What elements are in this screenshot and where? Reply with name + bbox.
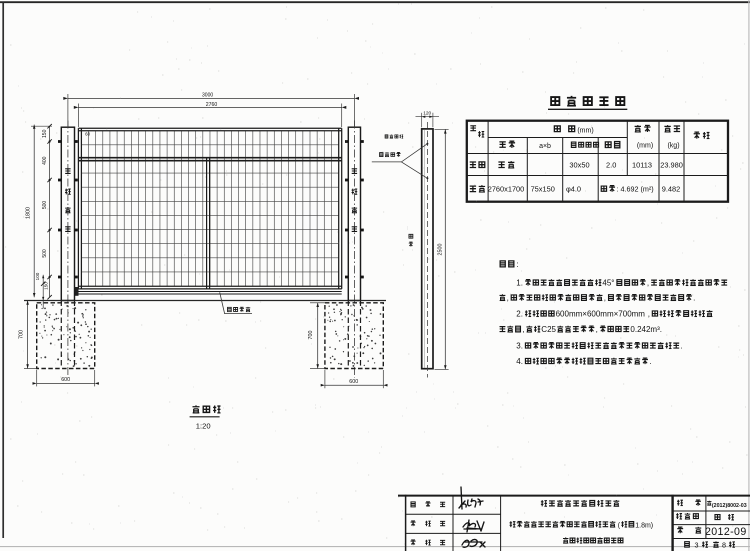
svg-text:φ4.0: φ4.0 (566, 185, 581, 194)
svg-text:700: 700 (308, 331, 314, 340)
svg-text:3000: 3000 (202, 93, 213, 99)
svg-text:9.482: 9.482 (662, 185, 681, 194)
svg-text:10113: 10113 (632, 161, 652, 170)
svg-text:,: , (507, 294, 509, 303)
svg-text:500: 500 (42, 249, 48, 258)
svg-text:,: , (596, 325, 598, 334)
svg-text:23.980: 23.980 (660, 161, 683, 170)
svg-text:(kg): (kg) (667, 143, 679, 150)
svg-text:1:20: 1:20 (196, 421, 211, 430)
svg-text:,: , (522, 325, 524, 334)
svg-text:0.242m³.: 0.242m³. (630, 325, 662, 334)
svg-text:60: 60 (85, 132, 90, 137)
svg-text:a×b: a×b (539, 143, 551, 150)
svg-text:30x50: 30x50 (569, 161, 589, 170)
svg-text:1.8m): 1.8m) (635, 523, 653, 530)
svg-text:600: 600 (61, 377, 70, 383)
svg-text:150: 150 (43, 282, 48, 290)
svg-text:8: 8 (722, 541, 726, 550)
svg-text:700: 700 (19, 330, 25, 339)
svg-text:(2012)8002-03: (2012)8002-03 (712, 503, 747, 509)
svg-text:(: ( (618, 523, 621, 530)
svg-text:2.0: 2.0 (606, 161, 616, 170)
svg-text:120: 120 (423, 110, 431, 116)
svg-text:100: 100 (35, 272, 40, 280)
svg-text:(mm): (mm) (637, 143, 653, 150)
svg-text:,: , (648, 310, 650, 319)
svg-text:2760x1700: 2760x1700 (488, 185, 525, 194)
svg-text:600: 600 (349, 379, 358, 385)
svg-text:2.: 2. (516, 310, 523, 319)
svg-text:75x150: 75x150 (531, 185, 555, 194)
svg-text:500: 500 (42, 201, 48, 210)
svg-text:2012-09: 2012-09 (705, 526, 747, 538)
svg-text:.: . (693, 294, 695, 303)
svg-text:400: 400 (42, 156, 48, 165)
svg-text:2760: 2760 (206, 102, 218, 108)
svg-text:1800: 1800 (26, 207, 32, 219)
svg-text:: 4.692 (m²): : 4.692 (m²) (617, 185, 654, 194)
svg-text:.: . (649, 357, 651, 366)
svg-text:2500: 2500 (438, 244, 444, 256)
svg-text::: : (516, 260, 518, 269)
svg-text:(mm): (mm) (577, 127, 593, 134)
svg-text:45°: 45° (602, 279, 614, 288)
svg-text:600mm×600mm×700mm: 600mm×600mm×700mm (556, 310, 646, 319)
svg-text:,: , (604, 294, 606, 303)
svg-text:3: 3 (695, 541, 699, 550)
svg-text:1.: 1. (516, 279, 523, 288)
svg-text:.: . (680, 342, 682, 351)
svg-text:,: , (647, 279, 649, 288)
svg-text:4.: 4. (516, 357, 523, 366)
svg-text:C25: C25 (541, 325, 556, 334)
svg-text:3.: 3. (516, 342, 523, 351)
svg-text:150: 150 (42, 129, 48, 138)
